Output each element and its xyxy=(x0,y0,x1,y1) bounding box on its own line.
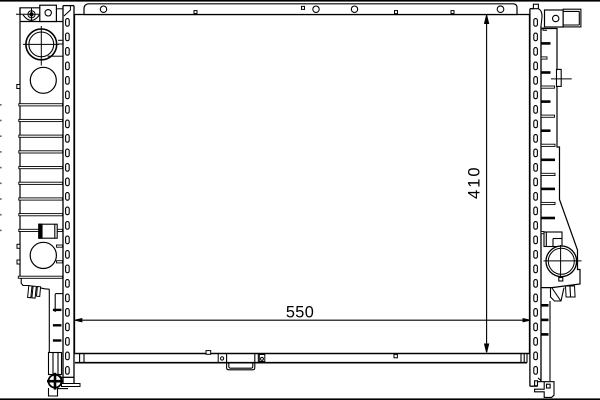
svg-text:550: 550 xyxy=(286,303,314,321)
svg-text:410: 410 xyxy=(465,165,483,199)
